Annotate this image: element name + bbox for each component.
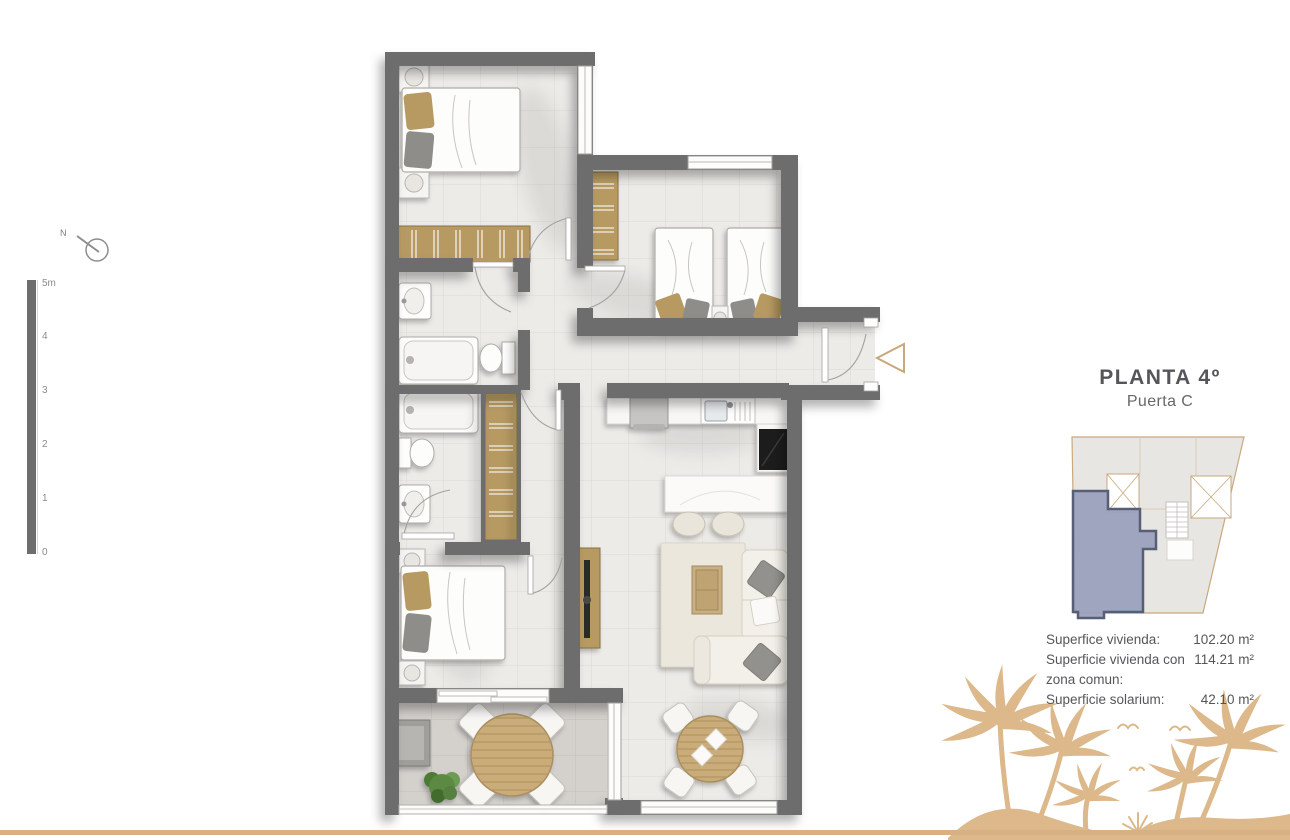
single-bed xyxy=(727,228,785,330)
toilet xyxy=(399,438,434,468)
single-bed xyxy=(654,228,713,330)
window xyxy=(688,156,772,169)
entrance-arrow-icon xyxy=(877,344,904,372)
terrace-glass-door xyxy=(608,703,621,800)
gold-divider-line xyxy=(0,830,1290,835)
hallway-closet xyxy=(485,390,517,540)
surface-info: Superfice vivienda: 102.20 m² Superficie… xyxy=(1046,630,1254,710)
double-bed xyxy=(401,566,505,660)
scale-label-0: 0 xyxy=(42,547,48,559)
surface-label: Superfice vivienda: xyxy=(1046,630,1193,650)
surface-row: Superfice vivienda: 102.20 m² xyxy=(1046,630,1254,650)
bedroom-1 xyxy=(398,62,530,262)
surface-label: Superficie vivienda con zona comun: xyxy=(1046,650,1194,690)
wardrobe xyxy=(398,226,530,262)
kitchen-sink xyxy=(701,398,755,424)
key-plan xyxy=(1072,437,1244,618)
bar-stool xyxy=(673,512,705,536)
surface-label: Superficie solarium: xyxy=(1046,690,1196,710)
scale-label-3: 3 xyxy=(42,385,48,397)
sliding-door xyxy=(437,689,549,703)
fridge xyxy=(630,398,668,429)
kitchen-island xyxy=(665,476,789,512)
coffee-table xyxy=(692,566,722,614)
scale-label-5m: 5m xyxy=(42,278,56,290)
surface-value: 102.20 m² xyxy=(1193,630,1254,650)
surface-value: 114.21 m² xyxy=(1194,650,1254,690)
key-plan-void xyxy=(1191,476,1231,518)
north-indicator-icon xyxy=(77,236,108,261)
terrace-railing xyxy=(399,805,607,814)
page-subtitle: Puerta C xyxy=(1040,393,1280,411)
scale-label-2: 2 xyxy=(42,439,48,451)
window xyxy=(641,801,777,814)
double-bed xyxy=(402,88,520,172)
window xyxy=(578,66,592,154)
floor-plan-canvas xyxy=(0,0,1290,840)
key-plan-void xyxy=(1107,474,1139,512)
scale-label-4: 4 xyxy=(42,331,48,343)
tv-console xyxy=(578,548,600,648)
north-label: N xyxy=(60,228,67,238)
bathtub xyxy=(399,389,478,433)
toilet xyxy=(480,342,515,374)
sink xyxy=(399,485,430,523)
surface-row: Superficie vivienda con zona comun: 114.… xyxy=(1046,650,1254,690)
bathtub xyxy=(399,337,478,384)
floor-plan-page: PLANTA 4º Puerta C Superfice vivienda: 1… xyxy=(0,0,1290,840)
sink xyxy=(399,283,431,319)
bar-stool xyxy=(712,512,744,536)
scale-label-1: 1 xyxy=(42,493,48,505)
surface-value: 42.10 m² xyxy=(1201,690,1254,710)
surface-row: Superficie solarium: 42.10 m² xyxy=(1046,690,1254,710)
scale-bar xyxy=(27,280,38,554)
page-title: PLANTA 4º xyxy=(1040,366,1280,390)
cooktop xyxy=(759,429,787,470)
